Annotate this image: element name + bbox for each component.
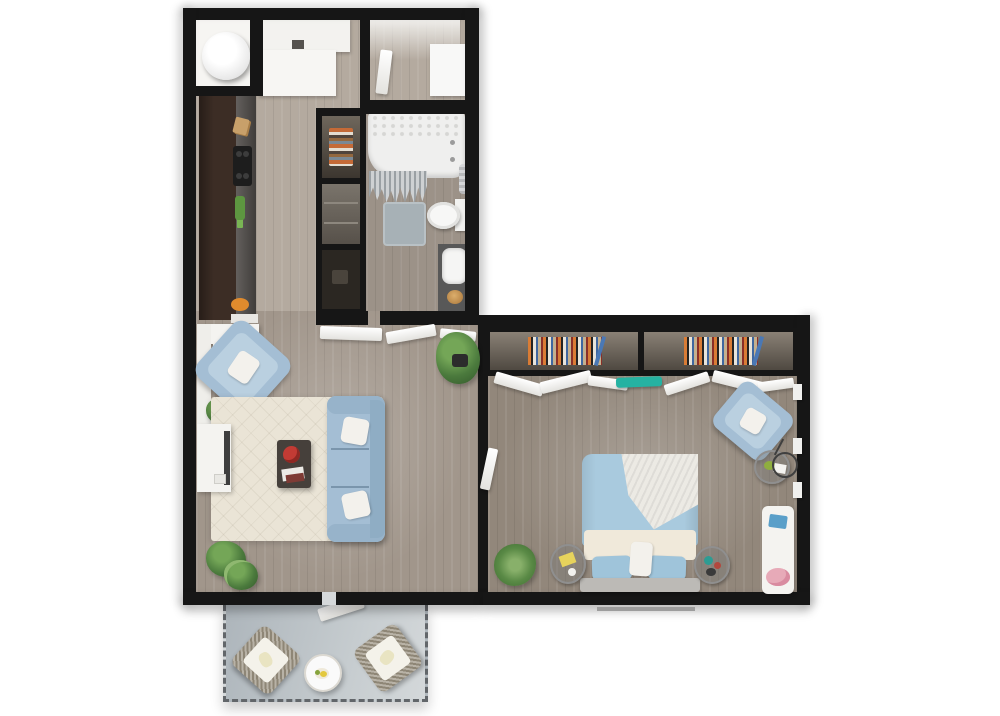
nightstand-right xyxy=(694,546,730,584)
yellow-book xyxy=(559,552,577,567)
books-row xyxy=(528,337,602,365)
cup xyxy=(568,568,576,576)
blue-item xyxy=(768,514,788,529)
shelf-line xyxy=(324,202,358,204)
lime xyxy=(315,670,320,675)
lemon xyxy=(320,671,327,677)
balcony-door-threshold xyxy=(322,592,336,605)
sofa-pillow-top xyxy=(340,416,370,446)
nightstand-left xyxy=(550,544,586,584)
console-item xyxy=(214,474,226,484)
stored-item xyxy=(332,270,348,284)
cooktop xyxy=(233,146,252,186)
bedroom-step-line xyxy=(597,607,695,611)
bath-south-wall-a xyxy=(316,311,368,325)
sofa-backrest xyxy=(370,400,385,538)
sofa-pillow-bottom xyxy=(341,490,372,521)
green-bottles xyxy=(235,196,245,220)
closet-wall-bottom xyxy=(196,86,263,96)
bed-pillow-right xyxy=(648,555,687,580)
outer-wall-top xyxy=(183,8,479,20)
closet-wall-right xyxy=(250,18,263,94)
fruit-bowl xyxy=(231,298,249,311)
flower-vase xyxy=(283,446,300,463)
tv-console xyxy=(197,424,231,492)
bedroom-wall-top xyxy=(478,315,810,328)
floor-plan-canvas xyxy=(0,0,1000,716)
sofa-seam xyxy=(331,486,369,488)
entry-bench xyxy=(258,50,336,96)
window-sill xyxy=(793,438,802,454)
washer xyxy=(430,44,466,96)
queen-bed xyxy=(582,454,698,594)
window-sill xyxy=(793,482,802,498)
water-heater-tank xyxy=(202,32,250,80)
teal-folded-cloth xyxy=(616,376,662,388)
toilet xyxy=(427,202,460,229)
bed-pillow-left xyxy=(592,555,633,580)
book-red xyxy=(286,473,305,483)
bath-mat xyxy=(383,202,426,246)
tub-faucet xyxy=(450,157,455,162)
floor-plant-b xyxy=(224,560,258,590)
top-wing-wall-right xyxy=(465,8,479,320)
teal-item xyxy=(704,556,713,565)
bed-pillow-white xyxy=(629,541,653,576)
entry-divider-wall xyxy=(360,18,370,106)
floor-lamp-ring xyxy=(772,452,798,478)
pink-flowers xyxy=(766,568,790,586)
closet-cell-dark xyxy=(322,250,360,309)
wall-sill xyxy=(320,326,382,341)
entry-item xyxy=(292,40,304,49)
linen-stack xyxy=(329,128,353,166)
entry-cabinet xyxy=(262,18,350,52)
sofa-seam xyxy=(331,448,369,450)
books-row xyxy=(684,337,758,365)
dark-item xyxy=(706,568,716,576)
balcony-round-table xyxy=(304,654,342,692)
red-item xyxy=(714,562,721,569)
bookshelf-right xyxy=(644,332,793,370)
bath-south-wall-b xyxy=(380,311,479,325)
laundry-bath-wall xyxy=(360,100,465,114)
window-sill xyxy=(793,384,802,400)
tub-drain xyxy=(450,140,455,145)
kitchen-cabinet-run xyxy=(199,94,236,320)
closet-cell-shelves xyxy=(322,184,360,244)
sink xyxy=(442,248,467,284)
white-bench xyxy=(762,506,794,594)
coffee-table xyxy=(277,440,311,488)
closet-cell-linens xyxy=(322,116,360,178)
sofa xyxy=(327,396,385,542)
hex-tile-wall xyxy=(371,114,463,140)
gold-bowl xyxy=(447,290,463,304)
corner-plant-pot xyxy=(452,354,468,367)
bookshelf-left xyxy=(490,332,638,370)
shelf-line xyxy=(324,222,358,224)
outer-wall-left xyxy=(183,8,196,605)
headboard xyxy=(580,578,700,592)
